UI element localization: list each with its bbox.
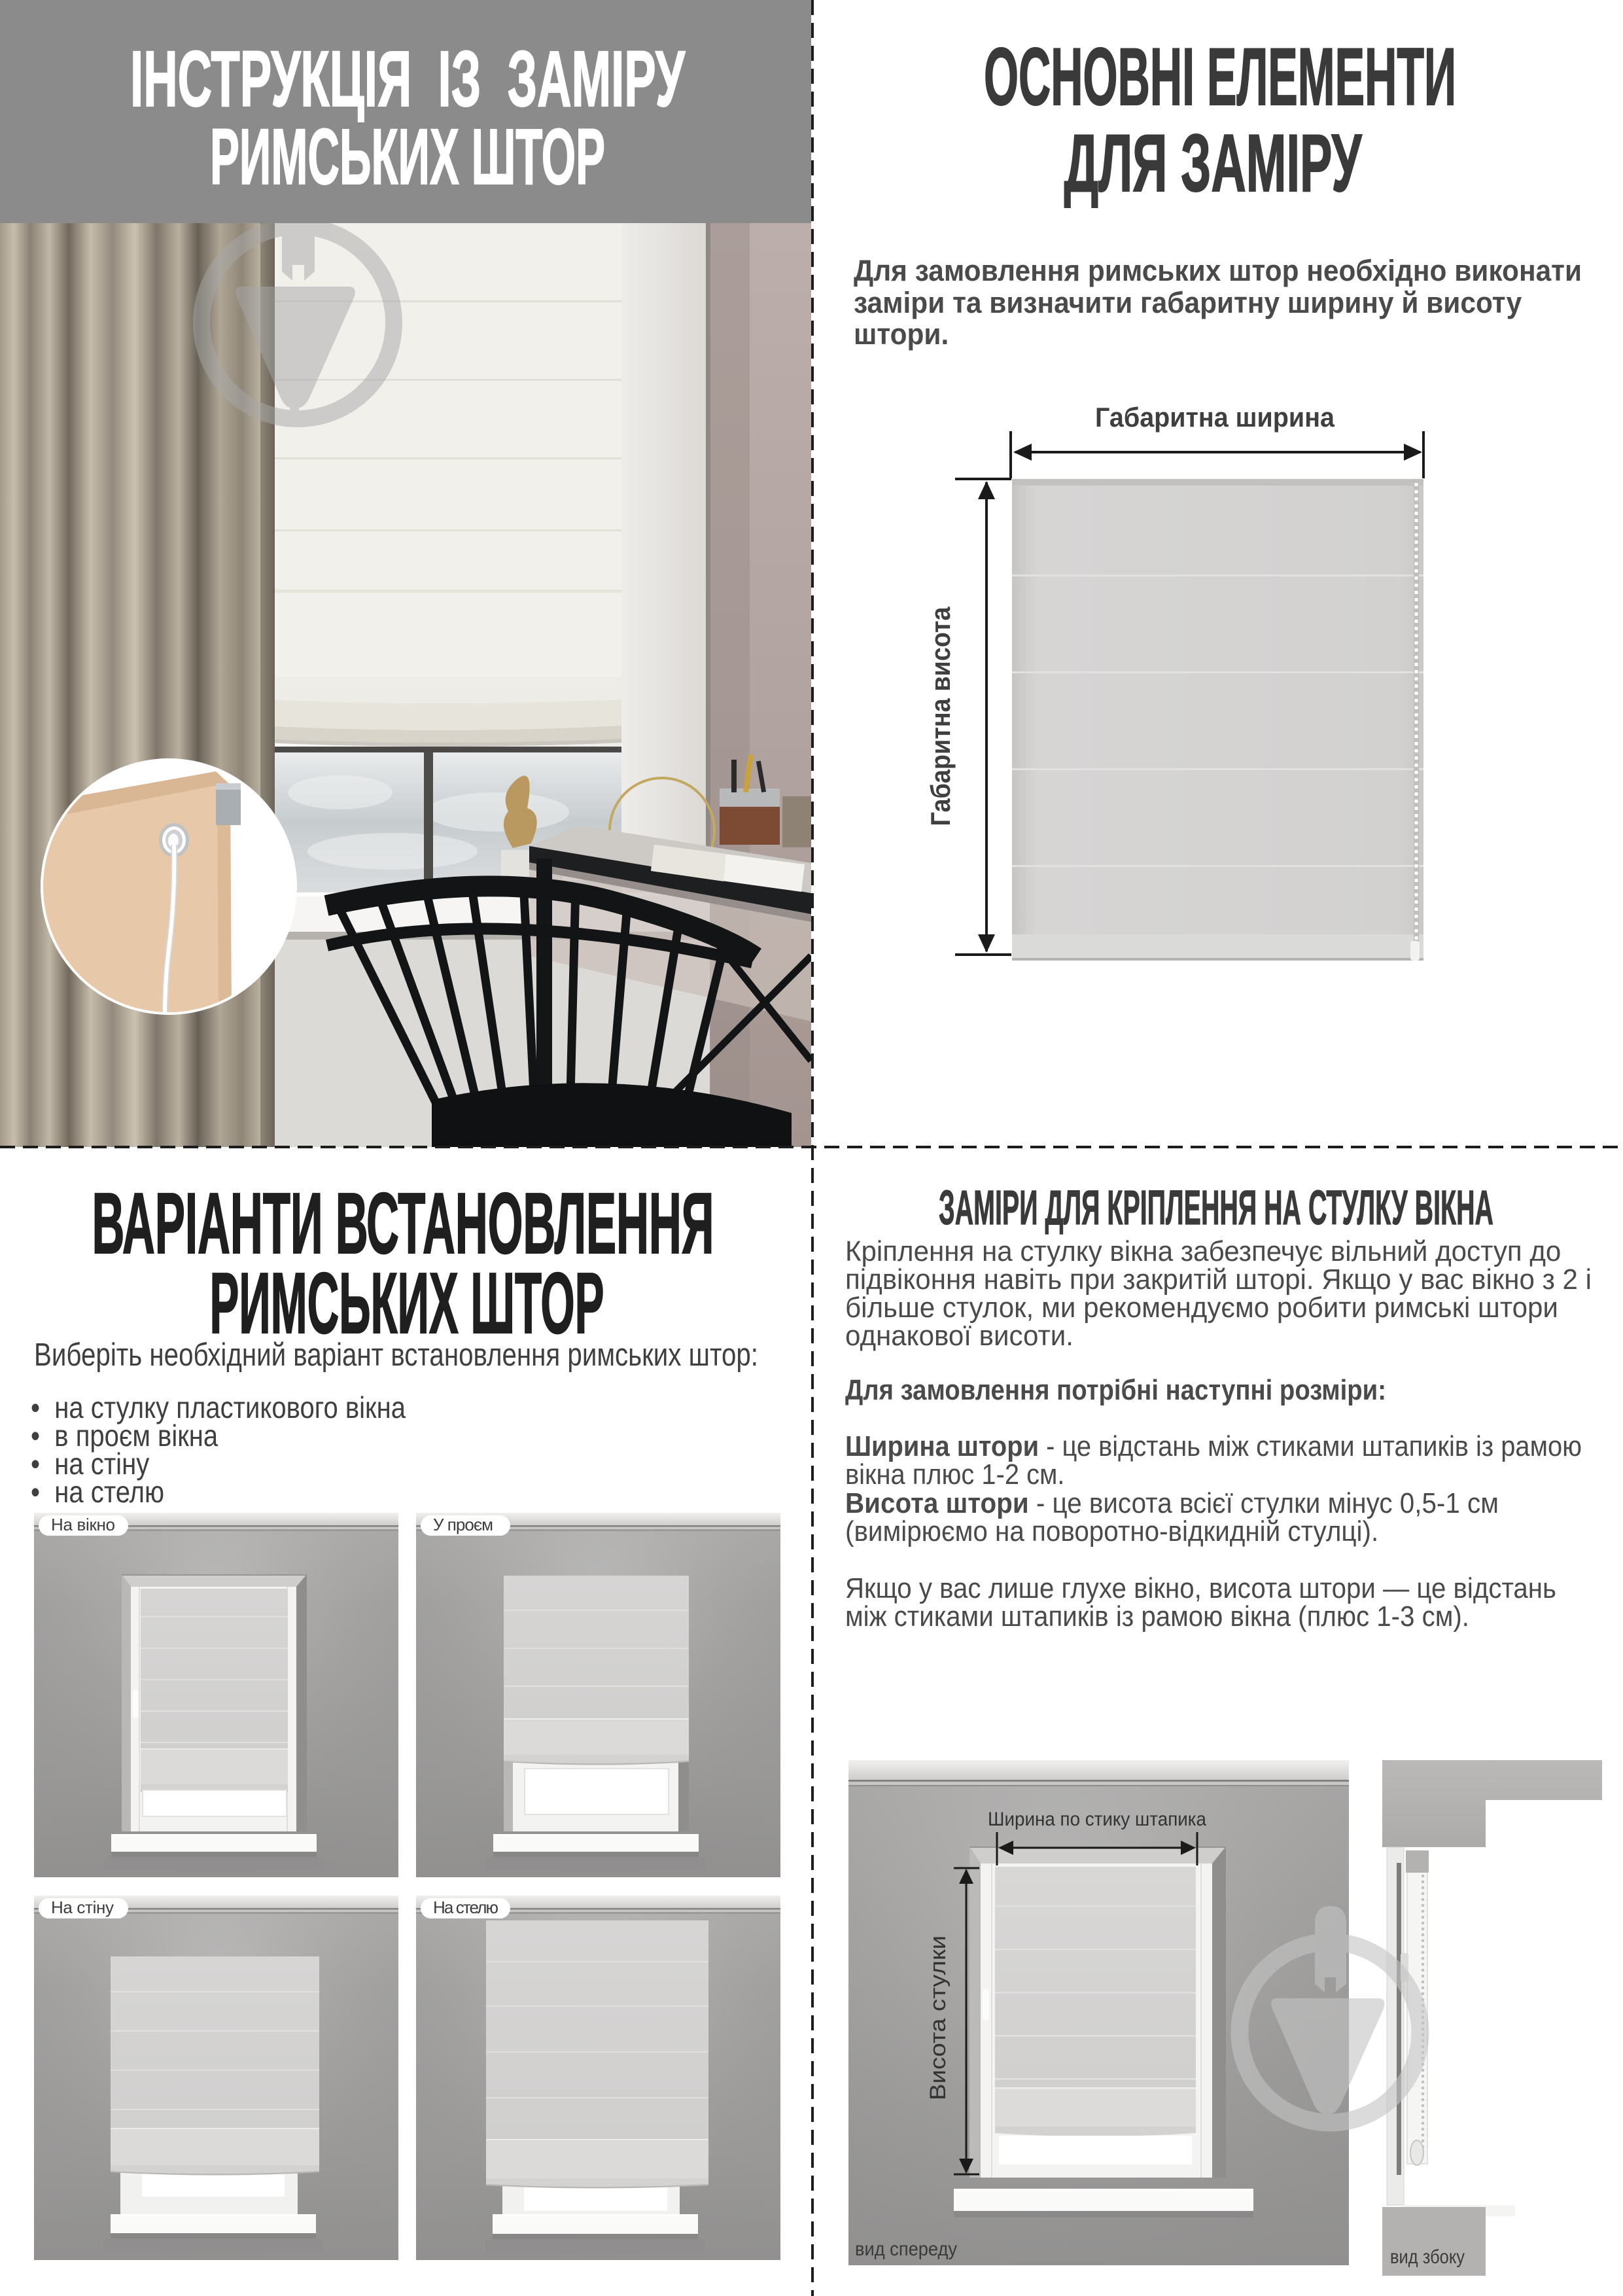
svg-text:У проєм: У проєм — [433, 1515, 493, 1534]
svg-text:Висота стулки: Висота стулки — [926, 1935, 951, 2100]
svg-text:На стелю: На стелю — [433, 1898, 498, 1917]
svg-text:Габаритна висота: Габаритна висота — [925, 607, 956, 826]
svg-text:вид спереду: вид спереду — [855, 2238, 957, 2260]
svg-text:Габаритна ширина: Габаритна ширина — [1095, 402, 1335, 433]
svg-text:вид збоку: вид збоку — [1390, 2246, 1465, 2268]
svg-text:Ширина по стику штапика: Ширина по стику штапика — [988, 1809, 1206, 1830]
svg-text:На вікно: На вікно — [51, 1515, 115, 1534]
svg-text:На стіну: На стіну — [51, 1898, 114, 1917]
